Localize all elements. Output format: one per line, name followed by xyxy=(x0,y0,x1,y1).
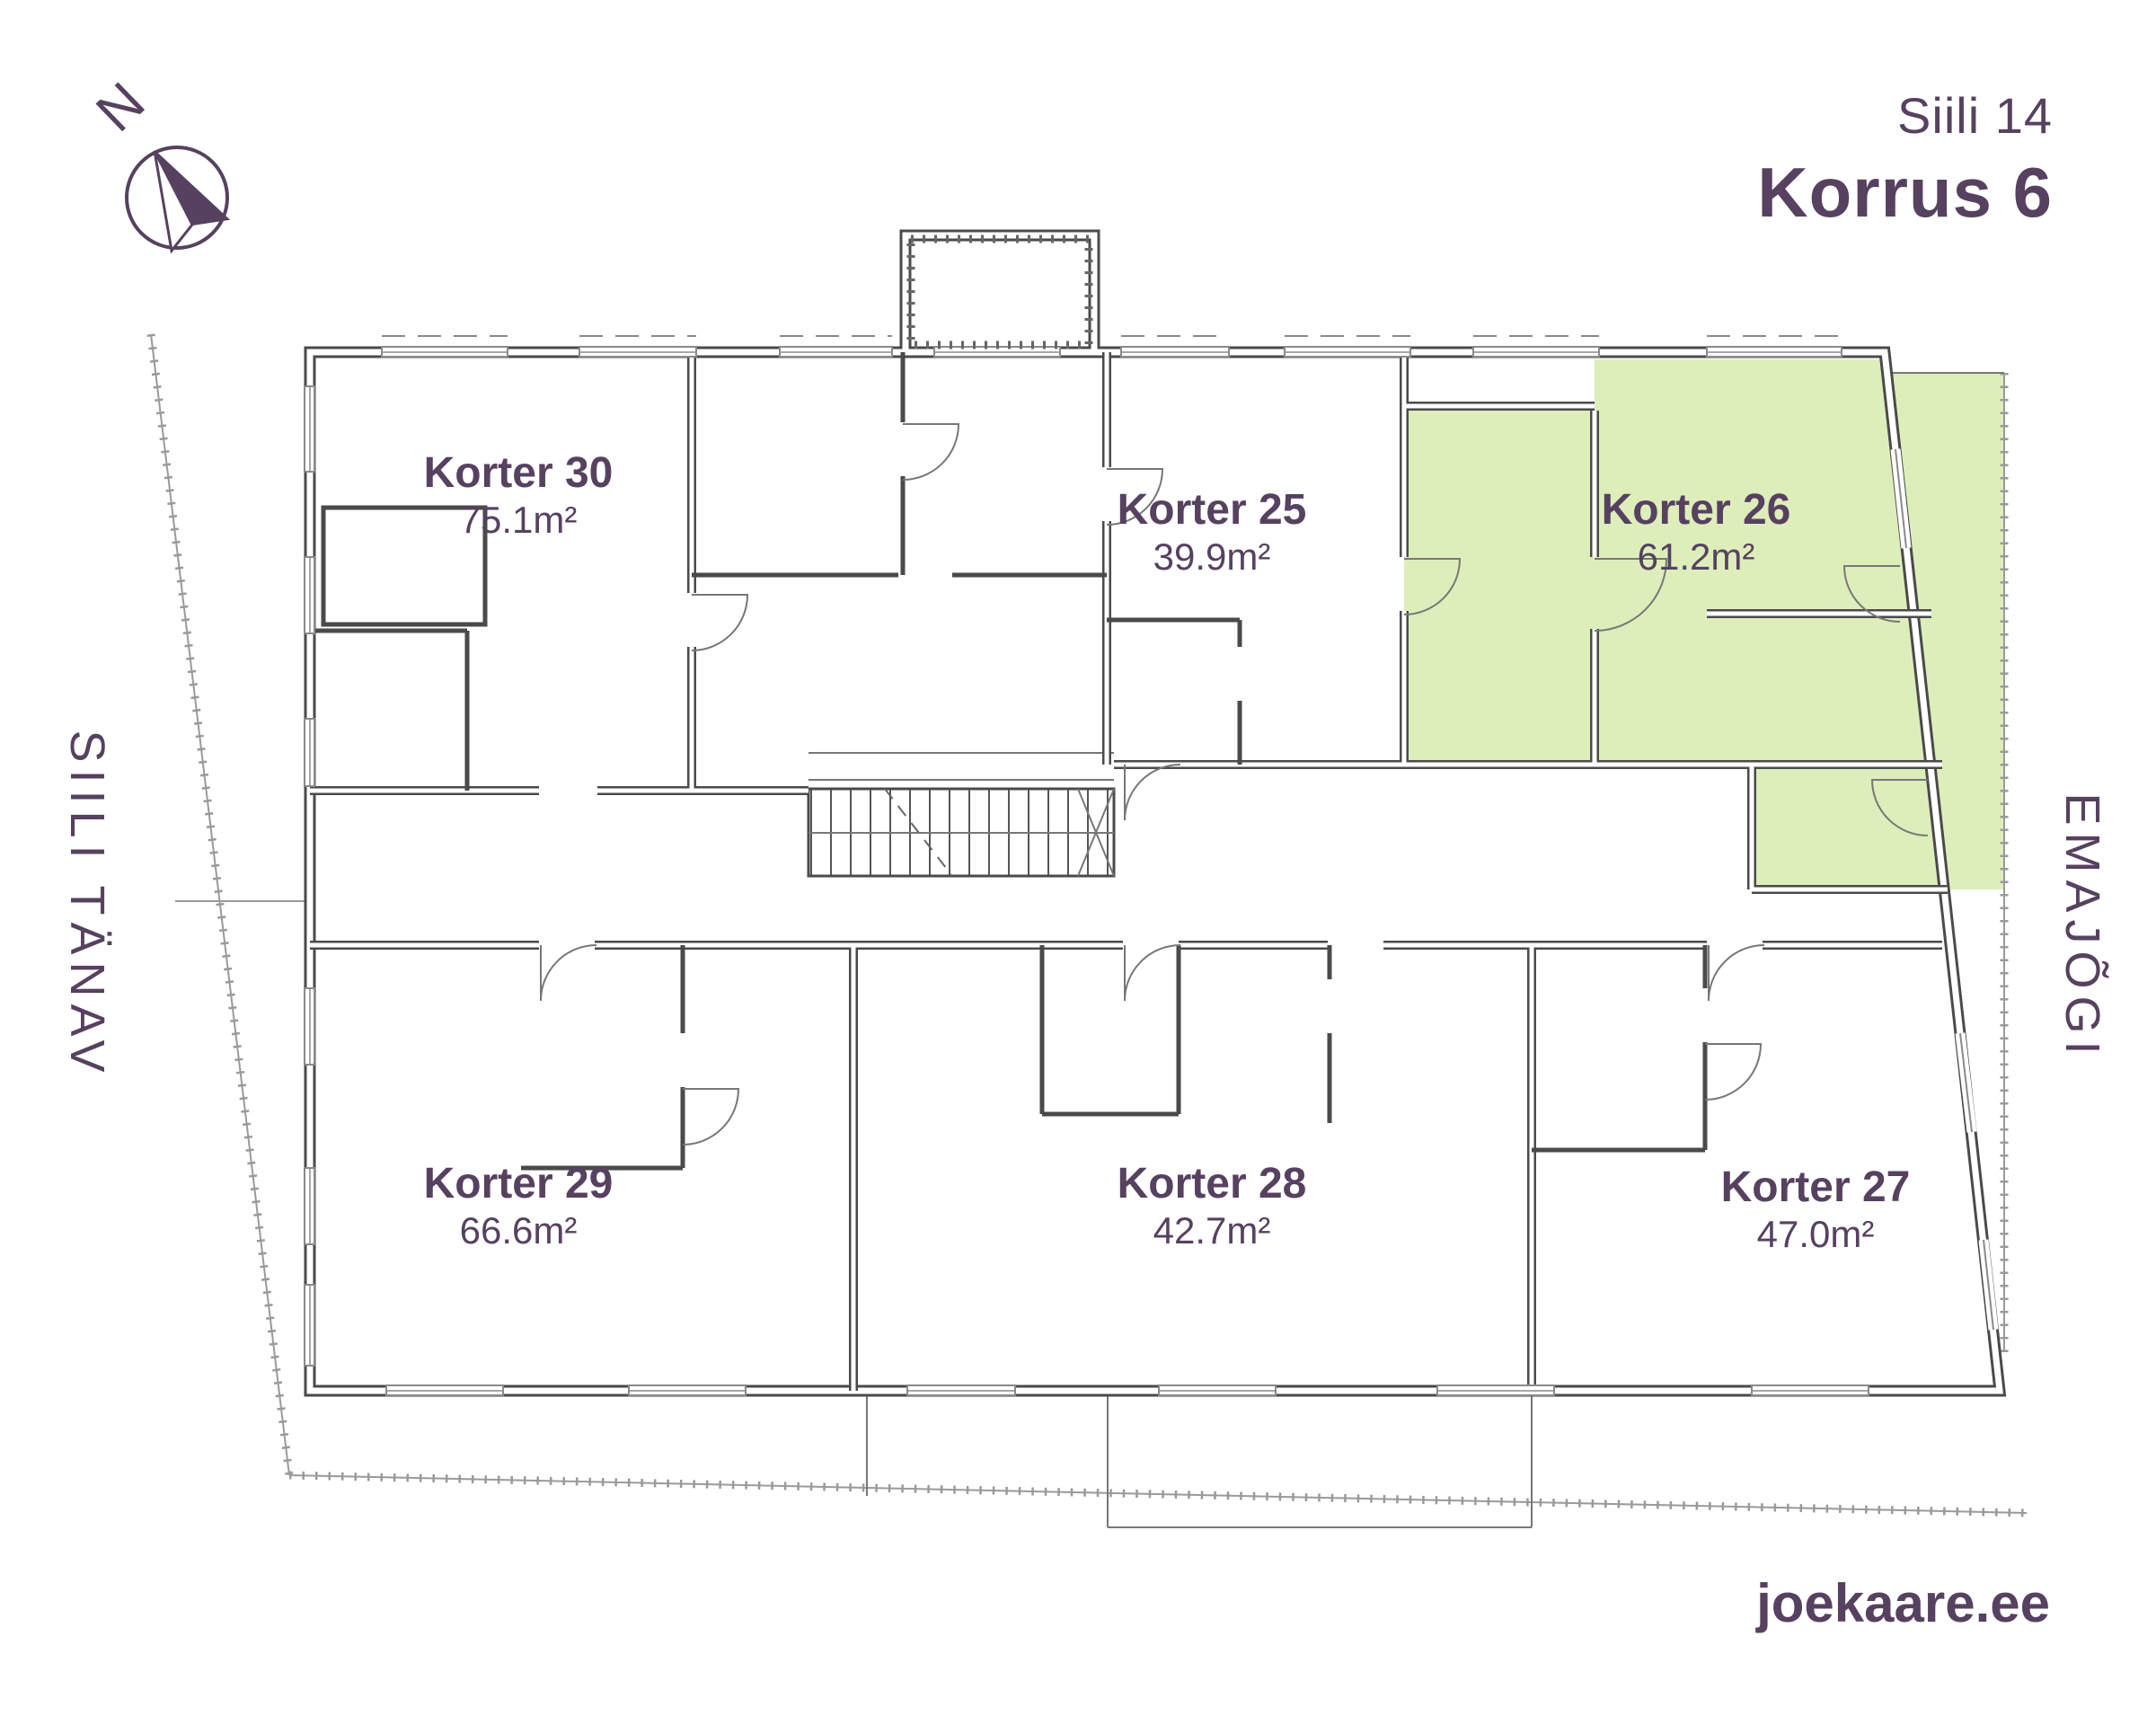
staircase xyxy=(808,753,1114,876)
compass-icon xyxy=(127,147,228,251)
plan-header: Siili 14 Korrus 6 xyxy=(1757,86,2053,234)
apartment-area: 47.0m² xyxy=(1721,1212,1911,1257)
apartment-name: Korter 28 xyxy=(1118,1160,1307,1208)
apartment-label-korter-29[interactable]: Korter 29 66.6m² xyxy=(424,1160,614,1253)
apartment-label-korter-26[interactable]: Korter 26 61.2m² xyxy=(1602,486,1791,579)
street-label-siili-tanav: SIILI TÄNAV xyxy=(59,730,115,1079)
apartment-label-korter-27[interactable]: Korter 27 47.0m² xyxy=(1721,1163,1911,1257)
apartment-name: Korter 29 xyxy=(424,1160,614,1208)
website-link[interactable]: joekaare.ee xyxy=(1756,1572,2050,1634)
apartment-area: 66.6m² xyxy=(424,1208,614,1253)
apartment-name: Korter 25 xyxy=(1118,486,1307,535)
apartment-area: 75.1m² xyxy=(424,498,614,543)
floorplan-page: Siili 14 Korrus 6 N SIILI TÄNAV EMAJÕGI … xyxy=(0,0,2156,1725)
apartment-area: 42.7m² xyxy=(1118,1208,1307,1253)
terrace xyxy=(911,239,1089,345)
apartment-area: 39.9m² xyxy=(1118,535,1307,579)
street-label-emajogi: EMAJÕGI xyxy=(2054,792,2110,1061)
floorplan-drawing xyxy=(0,0,2156,1725)
address-label: Siili 14 xyxy=(1757,86,2053,145)
apartment-name: Korter 30 xyxy=(424,449,614,498)
apartment-name: Korter 27 xyxy=(1721,1163,1911,1212)
apartment-label-korter-25[interactable]: Korter 25 39.9m² xyxy=(1118,486,1307,579)
apartment-label-korter-28[interactable]: Korter 28 42.7m² xyxy=(1118,1160,1307,1253)
floor-title: Korrus 6 xyxy=(1757,152,2053,234)
apartment-area: 61.2m² xyxy=(1602,535,1791,579)
apartment-label-korter-30[interactable]: Korter 30 75.1m² xyxy=(424,449,614,543)
apartment-name: Korter 26 xyxy=(1602,486,1791,535)
